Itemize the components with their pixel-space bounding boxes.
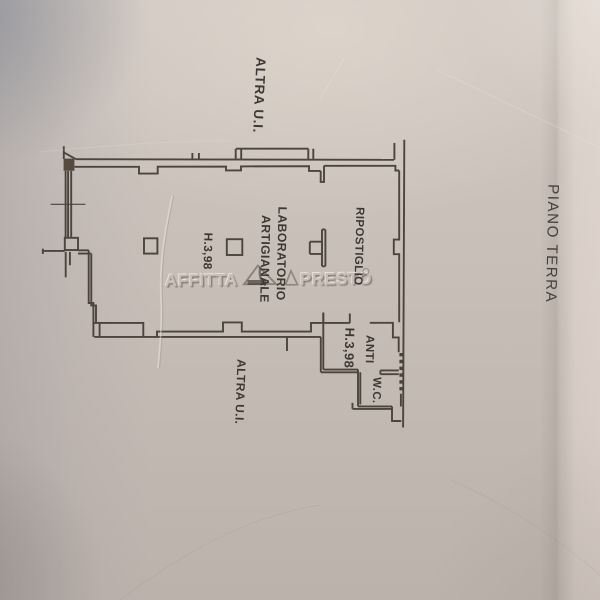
svg-text:ANTI: ANTI	[363, 335, 376, 364]
svg-text:PIANO TERRA: PIANO TERRA	[542, 184, 561, 304]
svg-text:H.3,98: H.3,98	[201, 232, 216, 270]
svg-text:H.3,98: H.3,98	[341, 327, 357, 368]
svg-text:ALTRA U.I.: ALTRA U.I.	[232, 359, 248, 425]
svg-text:LABORATORIO: LABORATORIO	[274, 206, 290, 300]
svg-text:RIPOSTIGLIO: RIPOSTIGLIO	[351, 207, 365, 286]
svg-text:ARTIGIANALE: ARTIGIANALE	[257, 215, 273, 303]
svg-text:W.C.: W.C.	[370, 377, 383, 404]
svg-text:ALTRA U.I.: ALTRA U.I.	[250, 57, 268, 134]
svg-text:AFFITTA: AFFITTA	[165, 271, 238, 291]
